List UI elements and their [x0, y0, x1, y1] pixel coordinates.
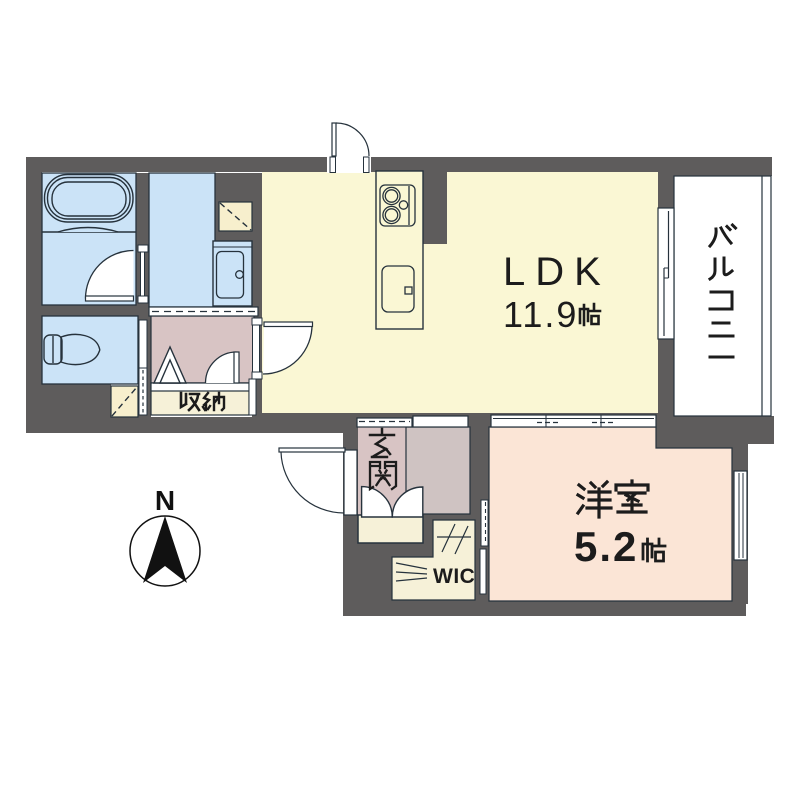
svg-text:11.9: 11.9	[503, 294, 578, 335]
svg-text:5.2: 5.2	[574, 523, 638, 570]
svg-text:LDK: LDK	[503, 250, 611, 294]
svg-text:N: N	[155, 485, 175, 516]
svg-text:WIC: WIC	[433, 565, 475, 588]
